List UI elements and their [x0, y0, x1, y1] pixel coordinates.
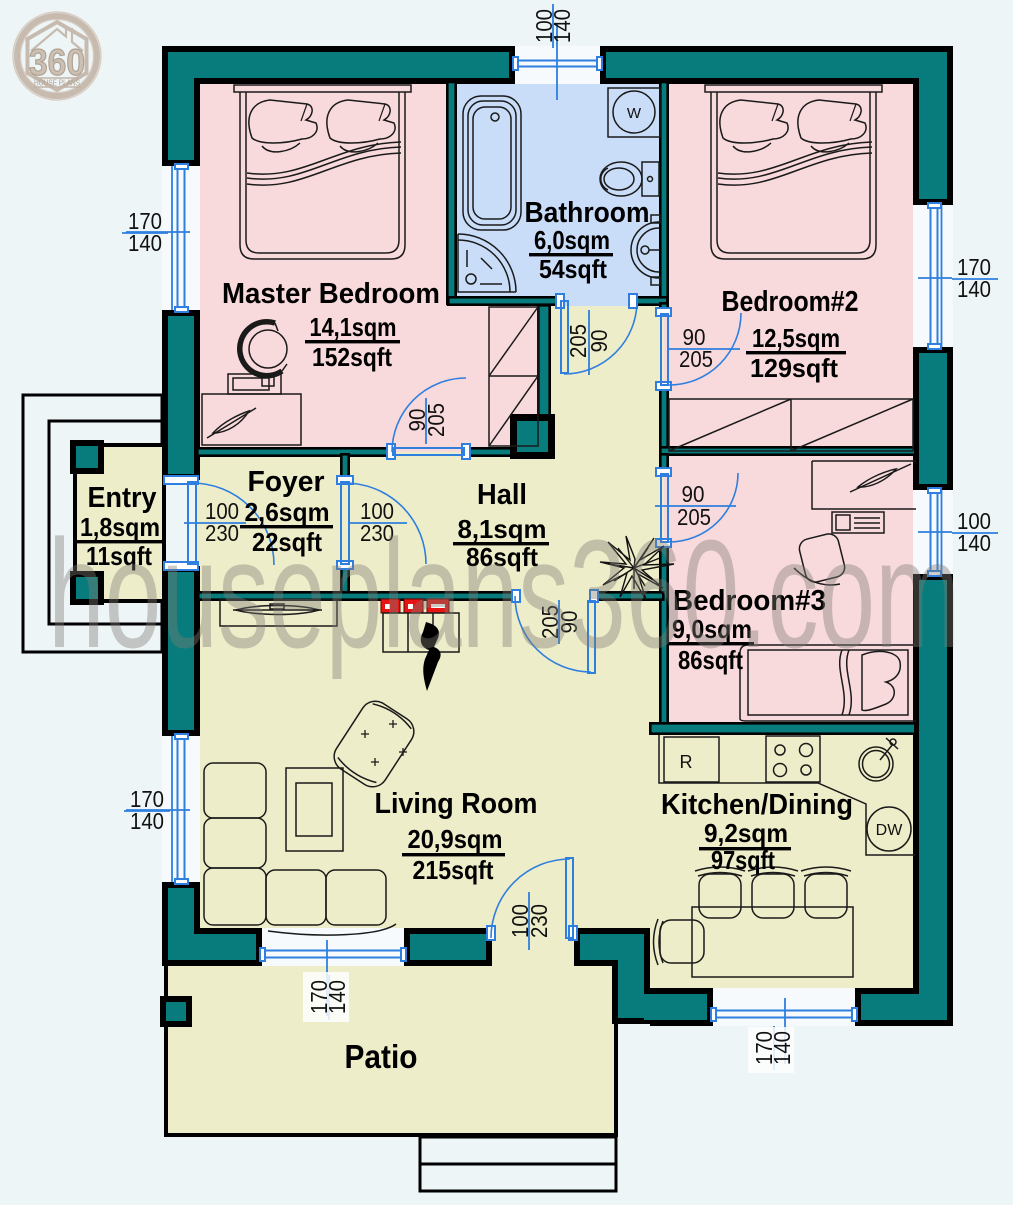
svg-text:9,2sqm: 9,2sqm: [704, 818, 788, 848]
svg-text:Hall: Hall: [477, 479, 527, 511]
svg-text:Kitchen/Dining: Kitchen/Dining: [661, 789, 853, 821]
svg-text:Master Bedroom: Master Bedroom: [222, 278, 440, 310]
svg-text:54sqft: 54sqft: [539, 254, 607, 284]
svg-text:Bedroom#2: Bedroom#2: [722, 286, 859, 318]
svg-text:140: 140: [128, 230, 162, 256]
svg-text:Patio: Patio: [345, 1038, 418, 1075]
svg-text:215sqft: 215sqft: [413, 855, 494, 885]
svg-text:W: W: [627, 105, 642, 122]
svg-text:HOUSE PLANS: HOUSE PLANS: [34, 79, 80, 88]
svg-text:360: 360: [29, 42, 85, 83]
svg-text:205: 205: [679, 346, 713, 372]
svg-text:12,5sqm: 12,5sqm: [752, 323, 840, 353]
svg-text:14,1sqm: 14,1sqm: [310, 312, 397, 342]
svg-text:140: 140: [957, 276, 991, 302]
svg-text:140: 140: [324, 980, 350, 1014]
svg-text:205: 205: [423, 403, 449, 437]
svg-text:152sqft: 152sqft: [312, 342, 392, 372]
svg-text:DW: DW: [876, 822, 904, 839]
svg-text:20,9sqm: 20,9sqm: [408, 824, 503, 854]
svg-text:Living Room: Living Room: [375, 788, 538, 820]
svg-text:R: R: [680, 752, 693, 772]
svg-text:230: 230: [526, 904, 552, 938]
svg-text:houseplans360.com: houseplans360.com: [48, 508, 960, 680]
svg-text:6,0sqm: 6,0sqm: [534, 225, 610, 255]
svg-text:140: 140: [549, 9, 575, 43]
svg-text:140: 140: [130, 808, 164, 834]
svg-text:97sqft: 97sqft: [711, 845, 775, 875]
svg-text:129sqft: 129sqft: [750, 353, 838, 383]
svg-text:Foyer: Foyer: [248, 466, 325, 498]
svg-text:90: 90: [586, 330, 612, 353]
svg-text:140: 140: [769, 1031, 795, 1065]
svg-text:140: 140: [957, 530, 991, 556]
